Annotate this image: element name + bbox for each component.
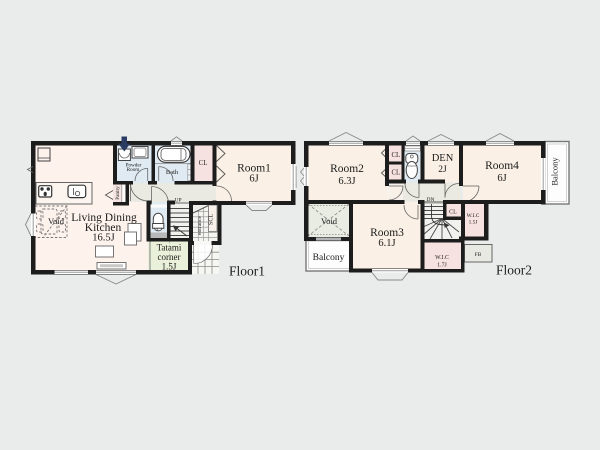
svg-text:2J: 2J (438, 165, 447, 175)
svg-text:Room4: Room4 (485, 160, 519, 172)
svg-text:1.7J: 1.7J (437, 263, 447, 269)
svg-text:Balcony: Balcony (313, 253, 345, 263)
svg-text:Pantry: Pantry (115, 186, 121, 200)
svg-text:W.I.C: W.I.C (467, 213, 480, 219)
svg-text:SCL: SCL (209, 214, 215, 225)
svg-text:UP: UP (174, 198, 181, 204)
svg-text:corner: corner (158, 252, 181, 262)
svg-text:Void: Void (48, 216, 65, 226)
svg-text:Room2: Room2 (330, 163, 364, 175)
svg-text:Tatami: Tatami (157, 243, 182, 253)
svg-text:CL: CL (199, 160, 208, 167)
svg-text:Room: Room (127, 167, 140, 173)
svg-text:Balcony: Balcony (550, 157, 560, 186)
svg-text:1.5J: 1.5J (469, 220, 478, 226)
svg-text:16.5J: 16.5J (92, 233, 114, 244)
svg-text:Floor2: Floor2 (496, 263, 532, 278)
svg-text:6J: 6J (249, 174, 258, 185)
svg-text:entrance: entrance (197, 216, 203, 235)
svg-text:6.1J: 6.1J (378, 238, 395, 249)
svg-text:6J: 6J (497, 173, 506, 184)
svg-text:CL: CL (391, 152, 400, 159)
svg-text:DN: DN (426, 197, 434, 203)
svg-text:CL: CL (391, 170, 400, 177)
svg-text:DEN: DEN (432, 153, 454, 164)
svg-text:CL: CL (449, 210, 457, 216)
svg-text:Floor1: Floor1 (229, 264, 265, 279)
svg-text:Void: Void (321, 216, 338, 226)
svg-text:6.3J: 6.3J (338, 176, 355, 187)
svg-text:FB: FB (475, 252, 482, 258)
svg-text:W.I.C: W.I.C (435, 255, 449, 261)
